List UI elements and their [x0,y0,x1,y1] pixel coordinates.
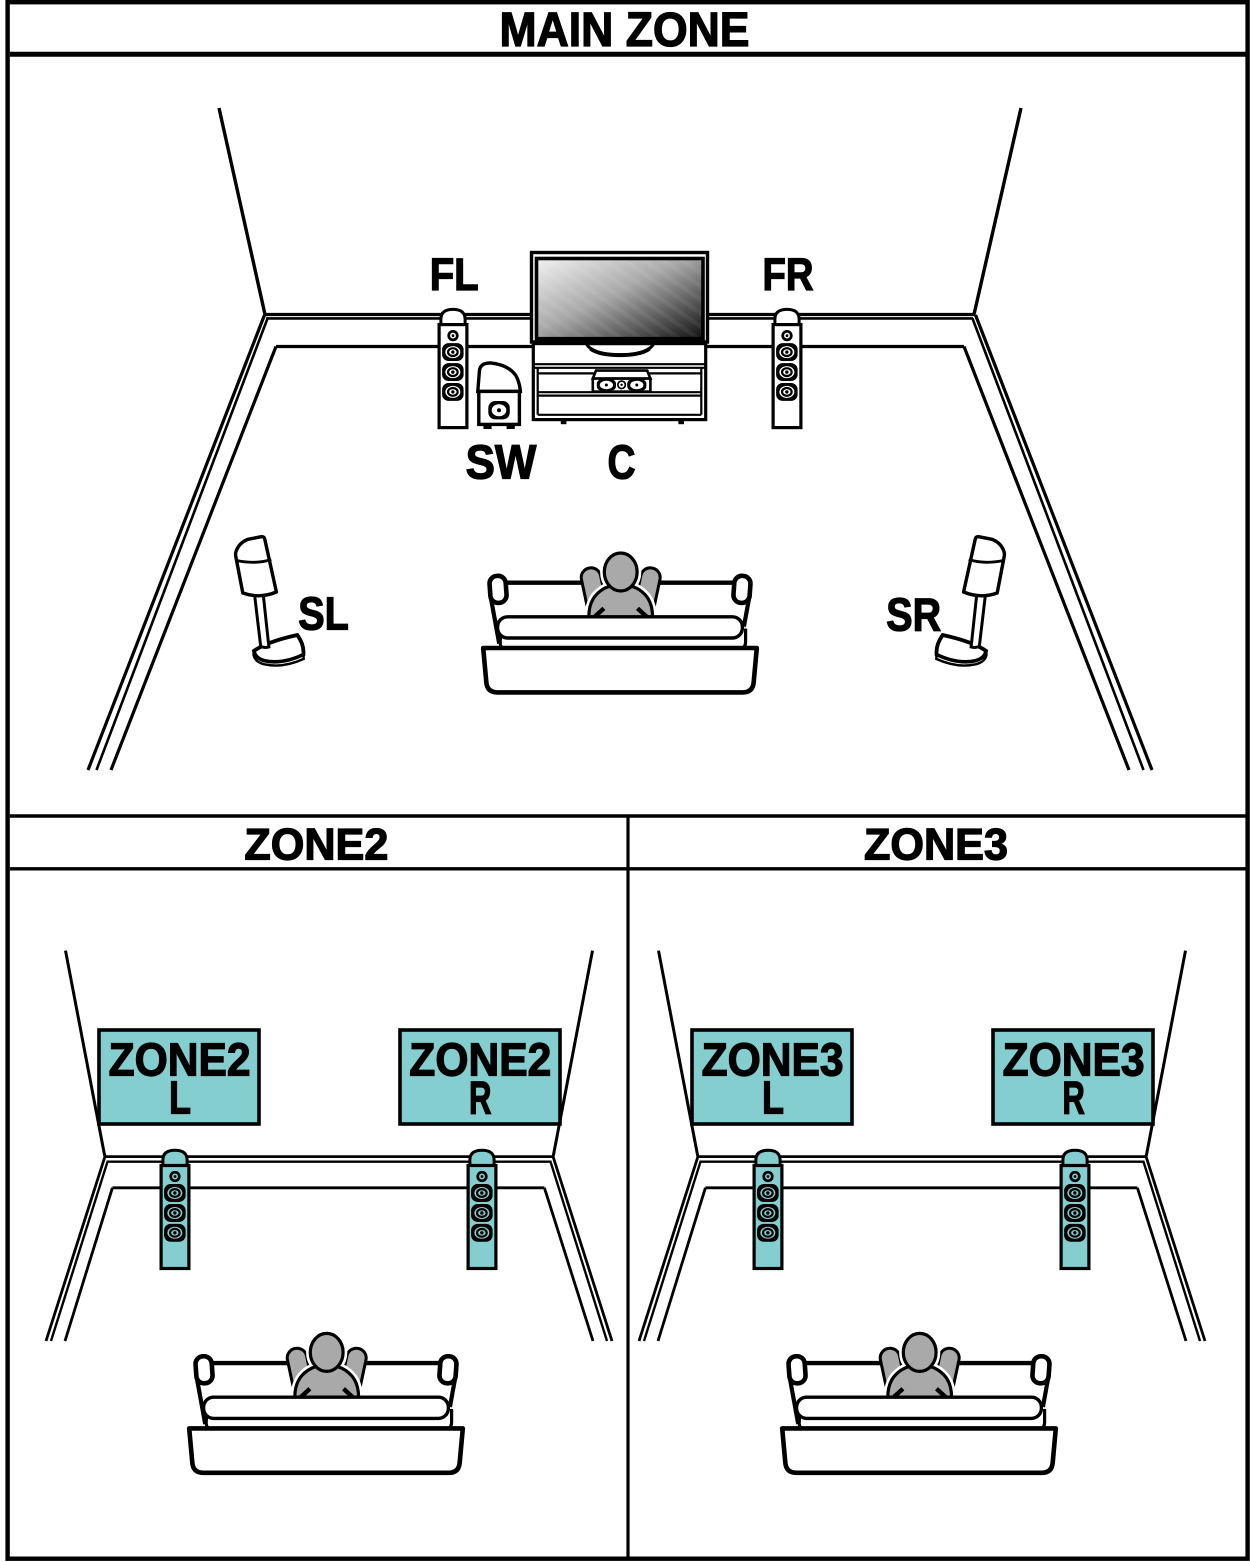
svg-text:SL: SL [298,588,349,640]
svg-text:R: R [469,1072,492,1124]
svg-text:FL: FL [430,249,479,300]
svg-text:R: R [1062,1072,1085,1124]
svg-text:C: C [608,436,636,489]
svg-text:FR: FR [763,249,814,300]
svg-text:L: L [762,1072,784,1124]
svg-text:SR: SR [886,588,941,640]
svg-text:ZONE2: ZONE2 [244,821,388,870]
svg-text:ZONE3: ZONE3 [864,821,1008,870]
svg-text:MAIN ZONE: MAIN ZONE [500,4,750,57]
svg-text:L: L [169,1072,191,1124]
svg-text:SW: SW [466,436,537,489]
